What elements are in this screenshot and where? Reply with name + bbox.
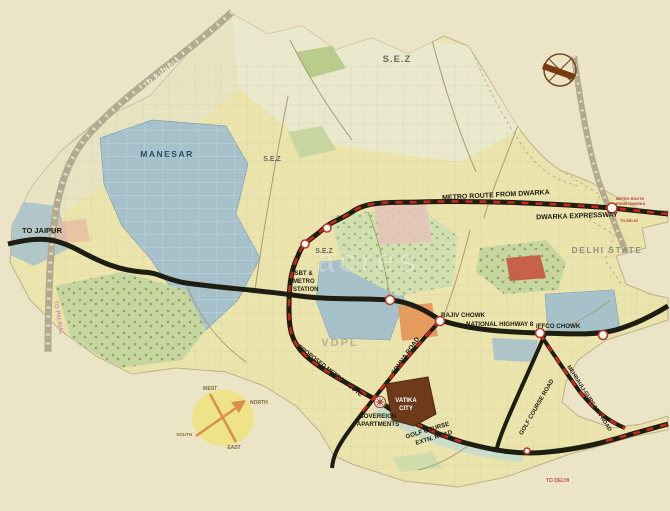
to-jaipur-label: TO JAIPUR xyxy=(22,226,62,235)
metro-small-label-2: FROM DWARKA xyxy=(616,202,646,206)
vatika-city-label-2: CITY xyxy=(399,406,413,412)
zone-red-east xyxy=(506,255,546,281)
vatika-city-label-1: VATIKA xyxy=(395,398,417,404)
node-gcx xyxy=(524,448,530,454)
to-delhi-small-label: TO DELHI xyxy=(620,219,638,223)
iffco-chowk-label: IFFCO CHOWK xyxy=(536,323,581,330)
sez-label-west: S.E.Z xyxy=(263,156,281,163)
compass-east-label: EAST xyxy=(227,445,240,451)
map-canvas: acres VATIKA CI xyxy=(0,0,670,511)
sovereign-apartments-label-1: SOVEREIGN xyxy=(360,413,397,420)
delhi-state-label: DELHI STATE xyxy=(572,245,643,255)
node-nh8-east xyxy=(599,331,608,340)
metro-small-label-1: METRO ROUTE xyxy=(616,197,645,201)
compass-north-label: NORTH xyxy=(250,400,268,406)
sez-label-north: S.E.Z xyxy=(383,54,412,65)
node-metro-2 xyxy=(301,240,309,248)
rajiv-chowk-label: RAJIV CHOWK xyxy=(441,312,486,319)
node-nh8-west xyxy=(386,296,395,305)
location-map: { "labels": { "to_jaipur": "TO JAIPUR", … xyxy=(0,0,670,511)
sovereign-apartments-label-2: APARTMENTS xyxy=(357,421,400,428)
manesar-label: MANESAR xyxy=(140,149,193,159)
isbt-label-1: ISBT & xyxy=(293,271,313,277)
national-highway-8-label: NATIONAL HIGHWAY 8 xyxy=(466,321,534,328)
star-icon xyxy=(376,398,384,406)
compass-south-label: SOUTH xyxy=(176,432,192,437)
zone-blue-south xyxy=(492,338,538,362)
compass-west-label: WEST xyxy=(203,386,217,392)
sez-label-central: S.E.Z xyxy=(315,248,333,255)
isbt-label-2: METRO xyxy=(293,279,315,285)
watermark-label: VDPL xyxy=(321,337,358,349)
to-delhi-bottom-label: TO DELHI xyxy=(546,478,570,484)
zone-pink xyxy=(374,203,432,245)
node-metro-1 xyxy=(323,224,331,232)
isbt-label-3: STATION xyxy=(293,287,318,293)
